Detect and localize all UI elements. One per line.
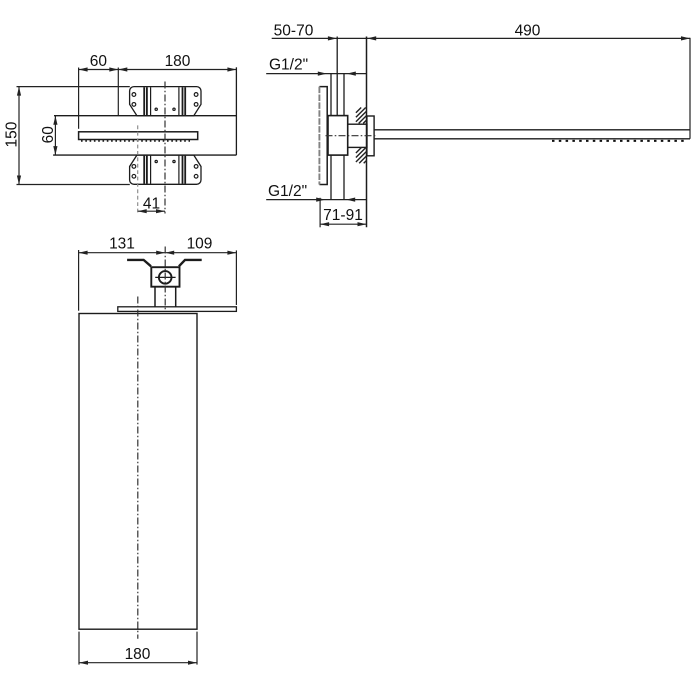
svg-text:109: 109 bbox=[187, 235, 213, 252]
svg-text:G1/2": G1/2" bbox=[269, 56, 308, 73]
svg-text:G1/2": G1/2" bbox=[268, 183, 307, 200]
svg-text:131: 131 bbox=[109, 235, 135, 252]
svg-text:150: 150 bbox=[3, 121, 20, 147]
svg-text:180: 180 bbox=[165, 53, 191, 70]
svg-text:50-70: 50-70 bbox=[274, 23, 314, 40]
svg-text:180: 180 bbox=[125, 646, 151, 663]
svg-text:60: 60 bbox=[40, 126, 57, 144]
svg-text:490: 490 bbox=[515, 23, 541, 40]
svg-text:41: 41 bbox=[143, 195, 160, 212]
svg-text:71-91: 71-91 bbox=[323, 207, 363, 224]
svg-text:60: 60 bbox=[90, 53, 108, 70]
